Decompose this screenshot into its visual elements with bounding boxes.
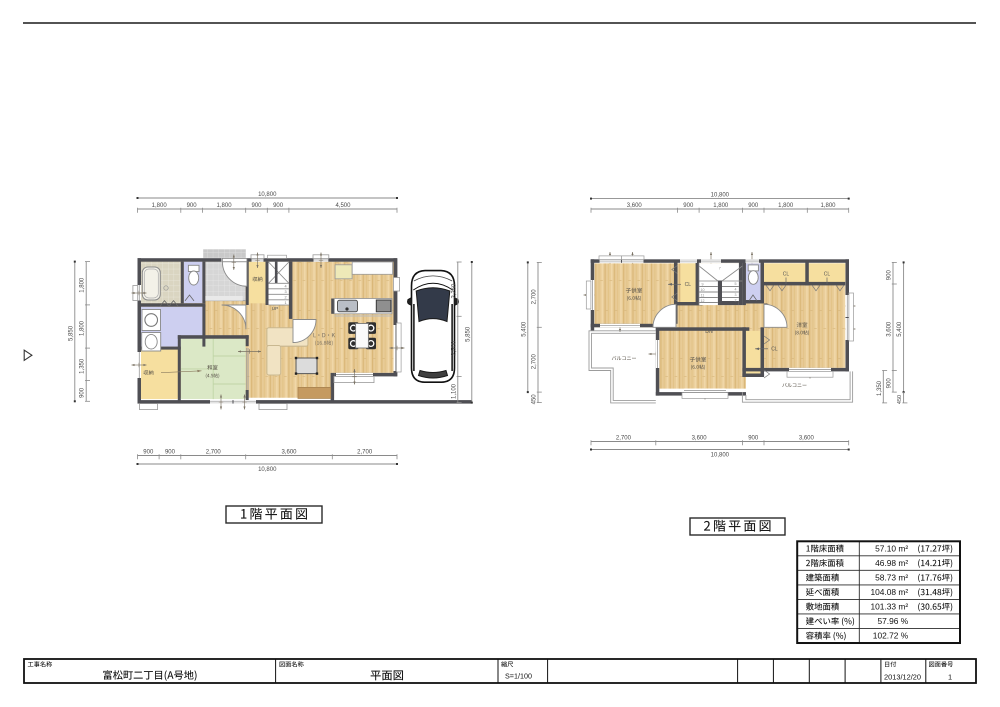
svg-text:2,250: 2,250	[451, 283, 457, 299]
svg-text:3,600: 3,600	[627, 203, 643, 209]
svg-text:900: 900	[748, 203, 759, 209]
svg-text:1,800: 1,800	[217, 203, 233, 209]
svg-text:4: 4	[735, 288, 737, 292]
svg-text:104.08 m²: 104.08 m²	[870, 587, 908, 597]
svg-text:450: 450	[532, 394, 538, 405]
svg-text:CL: CL	[783, 272, 790, 278]
svg-text:2: 2	[735, 299, 737, 303]
svg-text:58.73 m²: 58.73 m²	[875, 573, 908, 583]
svg-text:1,800: 1,800	[713, 203, 729, 209]
svg-text:2,700: 2,700	[532, 289, 538, 305]
svg-text:2,700: 2,700	[616, 436, 632, 442]
svg-text:10,800: 10,800	[711, 453, 730, 459]
svg-text:5,850: 5,850	[68, 325, 74, 341]
svg-text:1,800: 1,800	[80, 320, 86, 336]
svg-text:UP: UP	[272, 306, 279, 312]
svg-text:3: 3	[735, 293, 737, 297]
svg-text:1,800: 1,800	[778, 203, 794, 209]
svg-text:1: 1	[948, 673, 952, 682]
svg-text:1,800: 1,800	[152, 203, 168, 209]
svg-text:12: 12	[701, 299, 705, 303]
svg-text:CL: CL	[824, 272, 831, 278]
svg-text:CL: CL	[685, 282, 692, 288]
svg-text:11: 11	[701, 294, 705, 298]
svg-text:46.98 m²: 46.98 m²	[875, 558, 908, 568]
svg-text:DN: DN	[705, 329, 713, 335]
svg-text:101.33 m²: 101.33 m²	[870, 602, 908, 612]
svg-text:2,700: 2,700	[206, 450, 222, 456]
svg-text:S=1/100: S=1/100	[505, 672, 532, 681]
svg-text:1: 1	[284, 301, 286, 305]
svg-text:10: 10	[701, 288, 705, 292]
svg-text:1,800: 1,800	[820, 203, 836, 209]
svg-text:9: 9	[702, 283, 704, 287]
svg-text:5: 5	[735, 282, 737, 286]
svg-text:5,400: 5,400	[521, 321, 527, 337]
svg-text:1,350: 1,350	[877, 380, 883, 396]
svg-text:900: 900	[165, 450, 176, 456]
svg-text:3,600: 3,600	[887, 321, 893, 337]
svg-text:2: 2	[284, 296, 286, 300]
svg-text:900: 900	[143, 450, 154, 456]
svg-text:10,800: 10,800	[258, 467, 277, 473]
svg-text:5,400: 5,400	[897, 321, 903, 337]
svg-text:450: 450	[897, 395, 903, 404]
svg-text:1,350: 1,350	[80, 358, 86, 374]
svg-text:3,600: 3,600	[281, 450, 297, 456]
svg-text:900: 900	[251, 203, 262, 209]
svg-text:3,600: 3,600	[799, 436, 815, 442]
svg-text:2,500: 2,500	[451, 340, 457, 356]
svg-text:3,600: 3,600	[692, 436, 708, 442]
svg-text:900: 900	[683, 203, 694, 209]
svg-text:3: 3	[284, 290, 286, 294]
svg-text:2,700: 2,700	[532, 354, 538, 370]
svg-text:4,500: 4,500	[335, 203, 351, 209]
svg-text:7: 7	[719, 267, 721, 271]
svg-text:4: 4	[284, 285, 286, 289]
svg-text:900: 900	[887, 378, 893, 389]
svg-text:900: 900	[273, 203, 284, 209]
svg-text:10,800: 10,800	[258, 192, 277, 198]
svg-text:2013/12/20: 2013/12/20	[884, 673, 921, 682]
svg-text:900: 900	[80, 387, 86, 398]
svg-text:900: 900	[748, 436, 759, 442]
svg-text:1,100: 1,100	[451, 383, 457, 399]
svg-text:10,800: 10,800	[711, 193, 730, 199]
svg-text:5,850: 5,850	[465, 326, 471, 342]
svg-text:57.96 %: 57.96 %	[877, 616, 908, 626]
svg-text:900: 900	[887, 270, 893, 281]
svg-text:900: 900	[187, 203, 198, 209]
svg-text:102.72 %: 102.72 %	[873, 631, 909, 641]
svg-text:2,700: 2,700	[357, 450, 373, 456]
svg-text:1,800: 1,800	[80, 277, 86, 293]
svg-text:57.10 m²: 57.10 m²	[875, 544, 908, 554]
svg-text:CL: CL	[771, 347, 778, 353]
